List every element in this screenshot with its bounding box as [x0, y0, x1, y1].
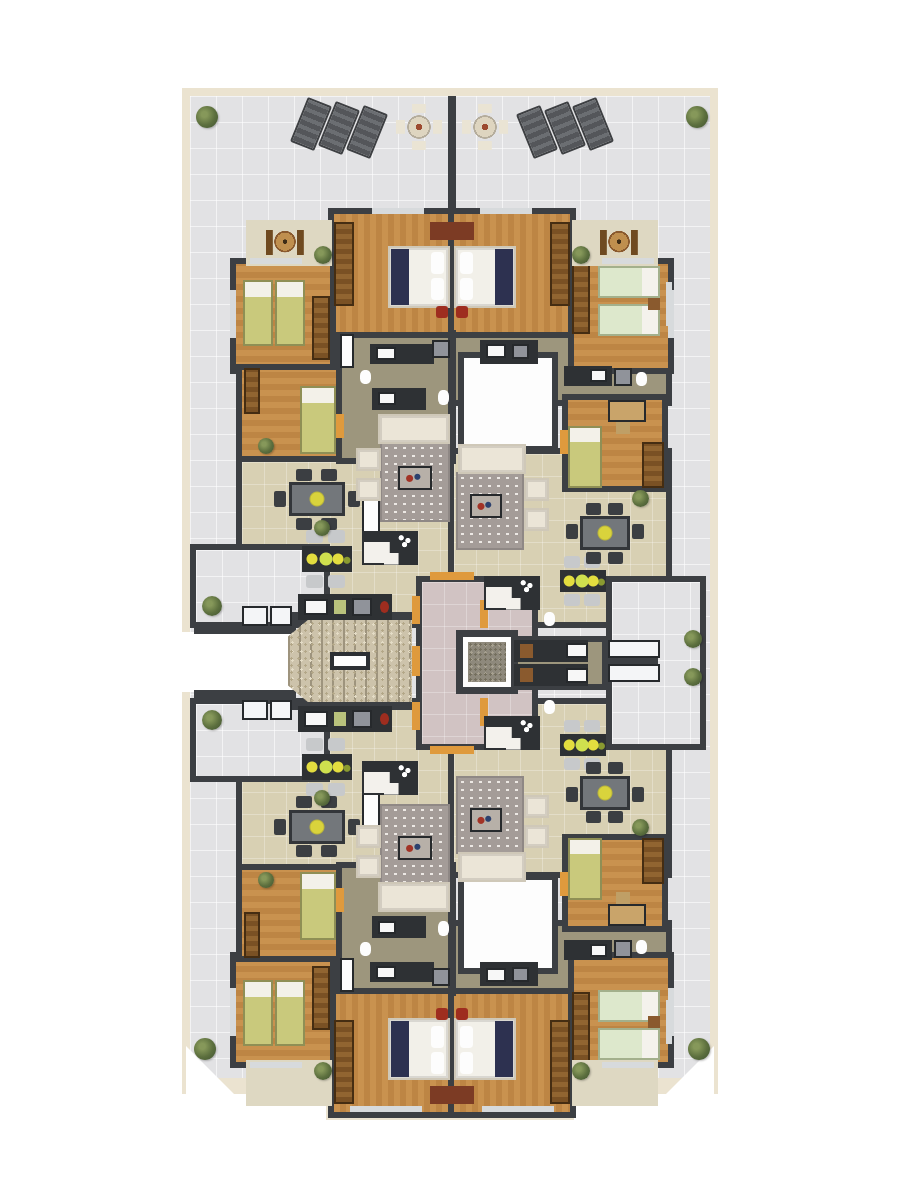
desk	[430, 222, 452, 240]
plant	[258, 872, 274, 888]
dining-chair	[608, 552, 623, 564]
wardrobe	[572, 264, 590, 334]
sofa	[378, 414, 450, 444]
window	[230, 988, 236, 1036]
cutting-board	[520, 668, 533, 682]
door-frame	[412, 596, 420, 624]
window	[480, 208, 532, 214]
bed-runner	[495, 1021, 513, 1077]
pillow	[460, 1052, 473, 1074]
bed-single	[598, 1028, 660, 1060]
plant	[202, 710, 222, 730]
window	[230, 290, 236, 338]
plant	[632, 819, 649, 836]
dining-chair	[586, 762, 601, 774]
plant	[684, 630, 702, 648]
door-frame	[412, 646, 420, 676]
desk-chair	[456, 306, 468, 318]
bed-single	[243, 280, 273, 346]
bath-sink	[378, 392, 396, 405]
desk	[608, 904, 646, 926]
bar-stool	[328, 575, 345, 588]
pillow	[431, 1052, 444, 1074]
plant	[688, 1038, 710, 1060]
bed-single	[300, 386, 336, 454]
dining-chair	[586, 503, 601, 515]
wardrobe	[550, 222, 570, 306]
door-frame	[560, 872, 568, 896]
bed-runner	[391, 249, 409, 305]
toilet	[544, 612, 555, 626]
window	[250, 258, 302, 264]
shower	[432, 968, 450, 986]
desk-chair	[436, 306, 448, 318]
ac-unit	[270, 606, 292, 626]
dining-chair	[608, 503, 623, 515]
wardrobe	[334, 1020, 354, 1104]
cutting-board	[520, 644, 533, 658]
ac-unit	[270, 700, 292, 720]
shower	[432, 340, 450, 358]
plant	[314, 520, 330, 536]
hall-bench	[484, 576, 540, 610]
wardrobe	[312, 966, 330, 1030]
plant	[684, 668, 702, 686]
wardrobe	[572, 992, 590, 1062]
bath-sink	[378, 921, 396, 934]
dining-chair	[274, 491, 286, 507]
desk-chair	[436, 1008, 448, 1020]
bar-stool	[306, 575, 323, 588]
bed-single	[598, 266, 660, 298]
desk-chair	[616, 422, 630, 434]
wardrobe	[334, 222, 354, 306]
sofa	[458, 852, 526, 882]
armchair	[356, 855, 381, 878]
dining-chair	[586, 811, 601, 823]
desk	[608, 400, 646, 422]
hall-bench	[362, 531, 418, 565]
terrace-divider-wall	[448, 96, 456, 218]
bed-runner	[391, 1021, 409, 1077]
bath-sink	[376, 347, 396, 360]
plant	[632, 490, 649, 507]
stove	[512, 344, 529, 359]
dining-chair	[608, 762, 623, 774]
pillow	[460, 278, 473, 300]
plant	[194, 1038, 216, 1060]
toilet	[438, 921, 449, 936]
coffee-table	[398, 466, 432, 490]
wardrobe	[550, 1020, 570, 1104]
ac-unit	[608, 664, 660, 682]
dining-chair	[296, 845, 312, 857]
coffee-table	[470, 808, 502, 832]
pillow	[460, 252, 473, 274]
bar-stool	[564, 556, 580, 568]
window	[602, 258, 654, 264]
sofa	[458, 444, 526, 474]
door-frame	[336, 414, 344, 438]
door-frame	[448, 572, 474, 580]
bath-sink	[590, 944, 607, 957]
window	[250, 1062, 302, 1068]
stove	[352, 598, 372, 616]
toilet	[438, 390, 449, 405]
plant	[314, 1062, 332, 1080]
door-frame	[336, 888, 344, 912]
hall-bench	[362, 761, 418, 795]
bath-sink	[566, 643, 588, 658]
pillow	[431, 252, 444, 274]
armchair	[524, 795, 549, 818]
bed-runner	[495, 249, 513, 305]
bed-single	[568, 426, 602, 488]
cutting-board	[334, 600, 346, 614]
stove	[512, 967, 529, 982]
bar-stool	[564, 594, 580, 606]
bar-stool	[328, 530, 345, 543]
bed-single	[275, 280, 305, 346]
toilet	[636, 940, 647, 954]
desk	[452, 222, 474, 240]
window	[350, 1106, 422, 1112]
desk-chair	[616, 892, 630, 904]
desk	[430, 1086, 452, 1104]
bar-counter	[560, 734, 606, 756]
bar-stool	[584, 594, 600, 606]
bar-stool	[584, 720, 600, 732]
bar-stool	[564, 758, 580, 770]
pillow	[460, 1026, 473, 1048]
armchair	[524, 508, 549, 531]
window	[666, 1000, 672, 1044]
dining-chair	[321, 845, 337, 857]
floor-plan	[0, 0, 900, 1200]
window	[602, 1062, 654, 1068]
kettle	[380, 713, 389, 725]
coffee-table	[470, 494, 502, 518]
plant	[314, 246, 332, 264]
hall-bench	[484, 716, 540, 750]
shower	[614, 940, 632, 958]
toilet	[360, 942, 371, 956]
desk	[452, 1086, 474, 1104]
plant	[572, 1062, 590, 1080]
shower-column	[340, 958, 354, 992]
desk-chair	[456, 1008, 468, 1020]
dining-chair	[586, 552, 601, 564]
bath-sink	[566, 668, 588, 683]
dining-chair	[566, 787, 578, 802]
bar-stool	[306, 738, 323, 751]
dining-chair	[321, 469, 337, 481]
dining-table	[289, 810, 345, 844]
armchair	[356, 825, 381, 848]
plant	[196, 106, 218, 128]
dining-table	[580, 776, 630, 810]
wardrobe	[244, 368, 260, 414]
bath-sink	[376, 966, 396, 979]
stove	[352, 710, 372, 728]
dining-table	[580, 516, 630, 550]
plant	[258, 438, 274, 454]
bath-sink	[590, 369, 607, 382]
coffee-table	[398, 836, 432, 860]
toilet	[636, 372, 647, 386]
entry-notch	[178, 632, 292, 692]
bar-counter	[560, 570, 606, 592]
bed-single	[243, 980, 273, 1046]
cutting-board	[334, 712, 346, 726]
ac-unit	[242, 700, 268, 720]
shower	[614, 368, 632, 386]
armchair	[524, 478, 549, 501]
dining-chair	[608, 811, 623, 823]
dining-table	[289, 482, 345, 516]
stair-window	[330, 652, 370, 670]
dining-chair	[296, 518, 312, 530]
balcony-table-set	[600, 226, 638, 260]
dining-chair	[632, 524, 644, 539]
pillow	[431, 1026, 444, 1048]
dining-chair	[274, 819, 286, 835]
bed-single	[300, 872, 336, 940]
toilet	[360, 370, 371, 384]
terrace-table-set	[396, 104, 442, 150]
armchair	[356, 448, 381, 471]
armchair	[356, 478, 381, 501]
shower-column	[340, 334, 354, 368]
dining-chair	[632, 787, 644, 802]
door-frame	[560, 430, 568, 454]
nightstand	[648, 1016, 660, 1028]
window	[666, 282, 672, 326]
plant	[314, 790, 330, 806]
bar-stool	[564, 720, 580, 732]
terrace-table-set	[462, 104, 508, 150]
storage-room	[458, 874, 558, 974]
wardrobe	[642, 442, 664, 488]
balcony-table-set	[266, 226, 304, 260]
plant	[686, 106, 708, 128]
elevator-cabin	[468, 642, 506, 682]
dining-chair	[296, 796, 312, 808]
bed-single	[275, 980, 305, 1046]
ac-unit	[608, 640, 660, 658]
kettle	[380, 601, 389, 613]
wardrobe	[312, 296, 330, 360]
ac-unit	[242, 606, 268, 626]
bar-stool	[328, 738, 345, 751]
kitchen-sink	[486, 968, 506, 982]
dining-chair	[566, 524, 578, 539]
toilet	[544, 700, 555, 714]
storage-room	[458, 352, 558, 452]
bar-stool	[328, 783, 345, 796]
kitchen-sink	[486, 344, 506, 358]
armchair	[524, 825, 549, 848]
kitchen-sink	[304, 711, 328, 727]
wardrobe	[244, 912, 260, 958]
window	[482, 1106, 554, 1112]
plant	[202, 596, 222, 616]
dining-chair	[296, 469, 312, 481]
kitchen-sink	[304, 599, 328, 615]
window	[372, 208, 424, 214]
pillow	[431, 278, 444, 300]
bar-counter	[302, 546, 352, 572]
plant	[572, 246, 590, 264]
sofa	[378, 882, 450, 912]
door-frame	[412, 702, 420, 730]
bed-single	[568, 838, 602, 900]
wardrobe	[642, 838, 664, 884]
bar-counter	[302, 754, 352, 780]
door-frame	[448, 746, 474, 754]
nightstand	[648, 298, 660, 310]
